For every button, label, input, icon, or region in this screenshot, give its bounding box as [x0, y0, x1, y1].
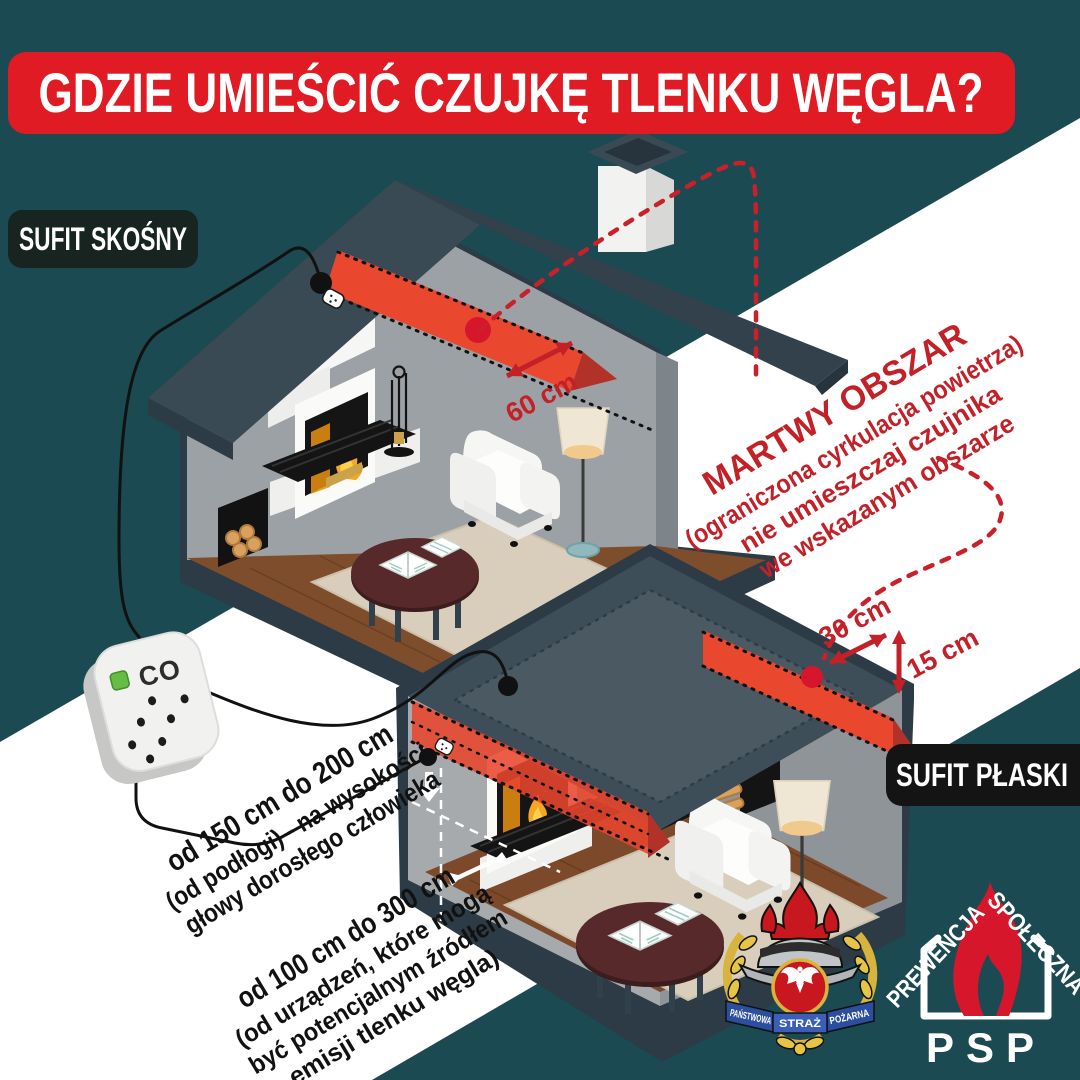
detector-led	[109, 670, 130, 691]
svg-text:SUFIT PŁASKI: SUFIT PŁASKI	[896, 757, 1068, 793]
svg-text:SUFIT SKOŚNY: SUFIT SKOŚNY	[19, 221, 187, 257]
chimney	[588, 130, 688, 252]
svg-text:PSP: PSP	[926, 1024, 1046, 1071]
page-title: GDZIE UMIEŚCIĆ CZUJKĘ TLENKU WĘGLA?	[39, 61, 984, 124]
svg-text:STRAŻ: STRAŻ	[779, 1017, 821, 1030]
title-banner: GDZIE UMIEŚCIĆ CZUJKĘ TLENKU WĘGLA?	[8, 52, 1015, 134]
label-flat-ceiling: SUFIT PŁASKI	[886, 744, 1080, 806]
infographic-co-detector-placement: CO 60 cm 30 cm 15 cm MARTW	[0, 0, 1080, 1080]
label-sloped-ceiling: SUFIT SKOŚNY	[8, 210, 198, 268]
dead-zone-dot-flat	[801, 666, 823, 688]
